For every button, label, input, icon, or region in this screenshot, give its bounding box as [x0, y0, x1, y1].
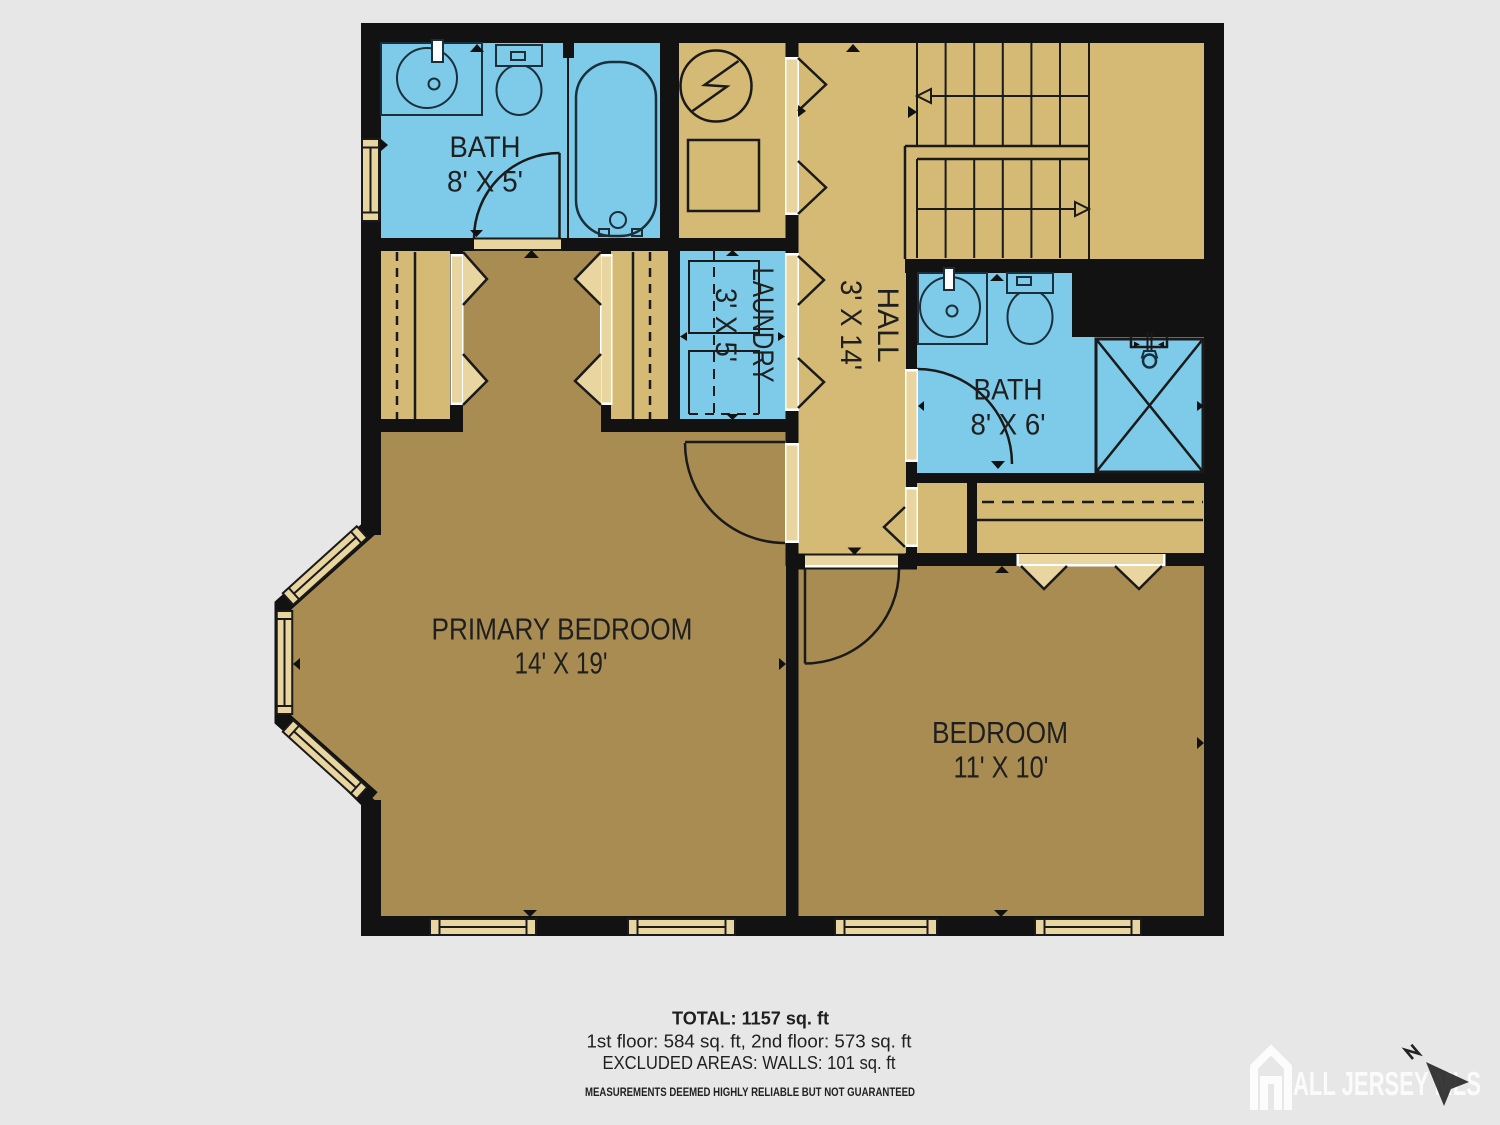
svg-text:EXCLUDED AREAS: WALLS: 101 sq.: EXCLUDED AREAS: WALLS: 101 sq. ft: [603, 1052, 896, 1073]
svg-text:8' X 5': 8' X 5': [447, 166, 523, 199]
svg-text:8' X 6': 8' X 6': [971, 409, 1046, 442]
svg-text:11' X 10': 11' X 10': [954, 750, 1049, 785]
svg-text:BATH: BATH: [974, 374, 1043, 407]
svg-text:BATH: BATH: [450, 131, 521, 164]
svg-text:3' X 5': 3' X 5': [709, 288, 742, 362]
svg-text:MEASUREMENTS DEEMED HIGHLY REL: MEASUREMENTS DEEMED HIGHLY RELIABLE BUT …: [585, 1085, 915, 1099]
svg-text:LAUNDRY: LAUNDRY: [746, 268, 779, 383]
svg-text:14' X 19': 14' X 19': [515, 646, 608, 681]
svg-text:PRIMARY BEDROOM: PRIMARY BEDROOM: [432, 612, 693, 647]
svg-text:HALL: HALL: [871, 288, 904, 363]
svg-text:3' X 14': 3' X 14': [834, 280, 867, 370]
svg-text:TOTAL: 1157 sq. ft: TOTAL: 1157 sq. ft: [672, 1008, 829, 1029]
svg-text:BEDROOM: BEDROOM: [932, 715, 1068, 750]
svg-text:1st floor: 584 sq. ft, 2nd flo: 1st floor: 584 sq. ft, 2nd floor: 573 sq…: [587, 1031, 912, 1052]
